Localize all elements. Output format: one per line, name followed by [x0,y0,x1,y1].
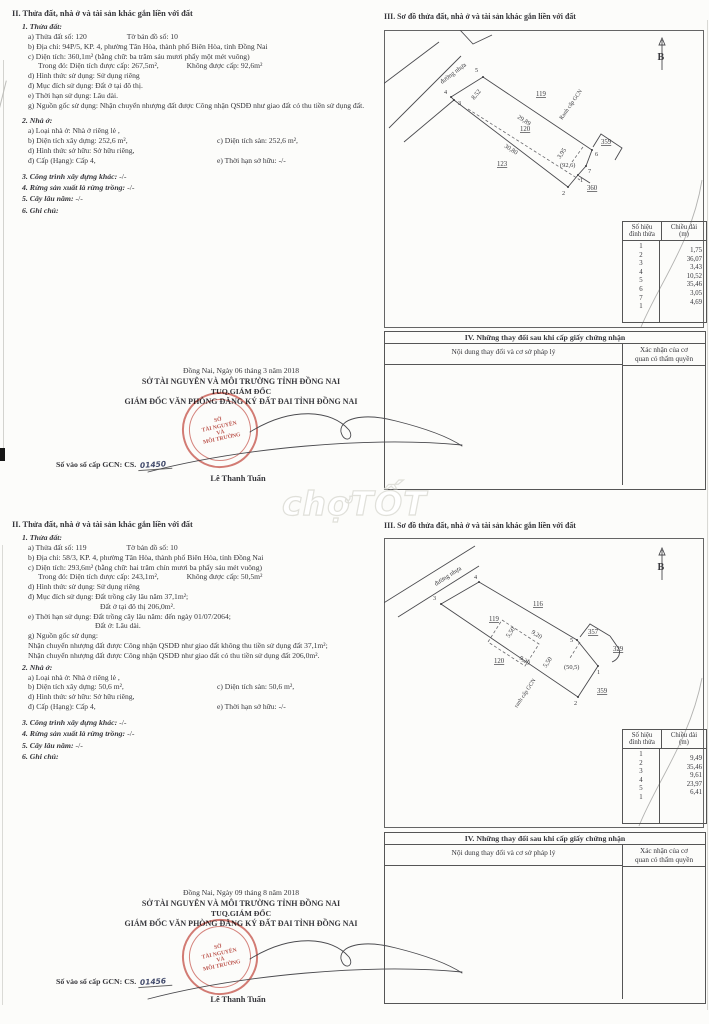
book-entry-number-handwritten: 01456 [138,976,173,988]
use-form-line: d) Hình thức sử dụng: Sử dụng riêng [12,71,378,81]
table-cell: 1 [623,243,659,252]
use-purpose-line: đ) Mục đích sử dụng: Đất ở tại đô thị. [12,81,378,91]
parcel-label-329: 329 [613,646,624,653]
use-term-line-2: Đất ở: Lâu dài. [12,621,378,631]
change-content-header: Nội dung thay đổi và cơ sở pháp lý [385,845,622,866]
parcel-section-title: 1. Thửa đất: [12,533,378,543]
header-line: Xác nhận của cơ [625,847,703,856]
table-cell: 3 [623,768,659,777]
change-content-column: Nội dung thay đổi và cơ sở pháp lý [385,344,623,485]
other-construction-label: 3. Công trình xây dựng khác: [22,718,117,727]
empty-cell [623,366,705,485]
map-sheet-number: Tờ bản đồ số: 10 [126,543,177,553]
granted-boundary-label: Ranh cấp GCN [558,87,585,121]
vertex-label-2: 2 [574,700,577,707]
parcel-label-359: 359 [597,688,608,695]
vertex-numbers: 1 2 3 4 5 1 [623,749,660,823]
red-seal-inner: SỞ TÀI NGUYÊN VÀ MÔI TRƯỜNG [183,920,257,994]
other-construction-line: 3. Công trình xây dựng khác: -/- [12,717,378,728]
table-cell: 5 [623,277,659,286]
header-line: Số hiệu [624,732,660,739]
vertex-label-5: 5 [475,67,478,74]
origin-line-1: Nhận chuyển nhượng đất được Công nhận QS… [12,641,378,651]
parcel-section-title: 1. Thửa đất: [12,22,378,32]
vertex-label-6: 6 [595,151,598,158]
road-edge [389,56,461,128]
house-grade: đ) Cấp (Hạng): Cấp 4, [28,156,217,166]
house-type-line: a) Loại nhà ở: Nhà ở riêng lẻ , [12,673,378,683]
section2-heading: II. Thửa đất, nhà ở và tài sản khác gắn … [12,519,378,530]
chotot-watermark: chợTỐT [282,484,427,523]
book-entry-number-handwritten: 01450 [138,459,173,471]
scan-black-mark [0,448,5,461]
section4-columns: Nội dung thay đổi và cơ sở pháp lý Xác n… [385,845,705,999]
section4-box-2: IV. Những thay đổi sau khi cấp giấy chứn… [384,832,706,1004]
perennial-label: 5. Cây lâu năm: [22,194,74,203]
edge-length-label: 9,20 [518,655,531,667]
granted-area: Trong đó: Diện tích được cấp: 243,1m², [38,572,159,581]
org-name: SỞ TÀI NGUYÊN VÀ MÔI TRƯỜNG TỈNH ĐỒNG NA… [60,899,422,908]
house-section-title: 2. Nhà ở: [12,116,378,126]
book-entry-line: Số vào sổ cấp GCN: CS. 01456 [56,977,172,987]
vertex-label-3: 3 [458,100,461,107]
road-edge [384,546,475,604]
parcel-number: a) Thửa đất số: 119 [28,543,87,552]
vertex-numbers: 1 2 3 4 5 6 7 1 [623,241,660,322]
parcel-label-123: 123 [497,161,508,168]
parcel-label-119: 119 [489,616,500,623]
edge-length-label: 30,80 [503,143,519,157]
perennial-value: -/- [76,741,83,750]
tuq-title: TUQ.GIÁM ĐỐC [60,909,422,918]
perennial-value: -/- [76,194,83,203]
section4-heading: IV. Những thay đổi sau khi cấp giấy chứn… [385,833,705,845]
vertex-table-body: 1 2 3 4 5 6 7 1 1,75 36,07 3,43 10,52 35… [623,241,706,322]
forest-value: -/- [127,729,134,738]
other-construction-value: -/- [119,718,126,727]
forest-value: -/- [127,183,134,192]
table-cell: 6 [623,286,659,295]
page-edge-line-right [707,20,708,1010]
floor-area: c) Diện tích sàn: 252,6 m², [217,136,298,146]
header-line: đỉnh thửa [624,231,660,238]
table-cell: 4 [623,777,659,786]
book-entry-line: Số vào sổ cấp GCN: CS. 01450 [56,460,172,470]
parcel-label-359: 359 [601,139,612,146]
empty-cell [385,365,622,485]
house-area-line: b) Diện tích xây dựng: 50,6 m², c) Diện … [12,682,378,692]
vertex-label-2: 2 [562,190,565,197]
edge-length-label: 5,50 [505,626,517,639]
parcel-number-line: a) Thửa đất số: 120 Tờ bản đồ số: 10 [12,32,378,42]
length-col-header: Chiều dài (m) [662,730,706,748]
page2-signature-block: Đồng Nai, Ngày 09 tháng 8 năm 2018 SỞ TÀ… [60,888,422,928]
map-sheet-number: Tờ bản đồ số: 10 [127,32,178,42]
dashed-segment [570,642,580,658]
table-cell: 4,69 [660,299,702,308]
house-type-line: a) Loại nhà ở: Nhà ở riêng lẻ , [12,126,378,136]
table-cell: 3,43 [660,264,702,273]
origin-line: g) Nguồn gốc sử dụng: Nhận chuyển nhượng… [12,101,373,111]
confirmation-column: Xác nhận của cơ quan có thẩm quyền [623,845,705,999]
org-name: SỞ TÀI NGUYÊN VÀ MÔI TRƯỜNG TỈNH ĐỒNG NA… [60,377,422,386]
empty-cell [623,867,705,999]
table-cell: 23,97 [660,781,702,790]
table-cell: 10,52 [660,273,702,282]
granted-boundary-label: ranh cấp GCN [513,677,538,709]
other-construction-label: 3. Công trình xây dựng khác: [22,172,117,181]
table-cell: 1 [623,794,659,803]
vertex-label-1: 1 [597,669,600,676]
page-edge-line-top [3,60,4,460]
table-cell: 1 [623,303,659,312]
parcel-label-116: 116 [533,601,544,608]
edge-length-label: 9,20 [530,629,543,641]
parcel-number: a) Thửa đất số: 120 [28,32,87,41]
parcel-label-360: 360 [587,185,598,192]
table-cell: 1 [623,751,659,760]
forest-line: 4. Rừng sản xuất là rừng trồng: -/- [12,728,378,739]
floor-area: c) Diện tích sàn: 50,6 m², [217,682,294,692]
vertex-label-4: 4 [474,574,477,581]
header-line: (m) [663,231,705,238]
not-granted-area-label: (92,6) [560,162,575,169]
ownership-term: e) Thời hạn sở hữu: -/- [217,702,286,712]
forest-label: 4. Rừng sản xuất là rừng trồng: [22,183,125,192]
edge-length-label: 5,50 [542,656,554,669]
vertex-label-7: 7 [588,168,591,175]
table-cell: 5 [623,785,659,794]
signer-name: Lê Thanh Tuấn [178,474,298,483]
section2-heading: II. Thửa đất, nhà ở và tài sản khác gắn … [12,8,378,19]
table-cell: 36,07 [660,256,702,265]
road-label: đường nhựa [433,565,463,588]
house-grade: đ) Cấp (Hạng): Cấp 4, [28,702,217,712]
section3-heading: III. Sơ đồ thửa đất, nhà ở và tài sản kh… [384,521,706,530]
scanned-land-certificate: { "watermark": { "text": "chợTỐT" }, "pa… [0,0,709,1024]
page2-section2: II. Thửa đất, nhà ở và tài sản khác gắn … [12,519,378,762]
header-line: Chiều dài [663,732,705,739]
section4-heading: IV. Những thay đổi sau khi cấp giấy chứn… [385,332,705,344]
empty-cell [385,866,622,999]
other-construction-line: 3. Công trình xây dựng khác: -/- [12,171,378,182]
header-line: quan có thẩm quyền [625,355,703,364]
section3-heading: III. Sơ đồ thửa đất, nhà ở và tài sản kh… [384,12,706,21]
change-content-column: Nội dung thay đổi và cơ sở pháp lý [385,845,623,999]
area-detail-line: Trong đó: Diện tích được cấp: 267,5m², K… [12,61,378,71]
confirmation-header: Xác nhận của cơ quan có thẩm quyền [623,344,705,366]
origin-line-2: Nhận chuyển nhượng đất được Công nhận QS… [12,651,378,661]
ownership-term: e) Thời hạn sở hữu: -/- [217,156,286,166]
parcel-label-357: 357 [588,629,599,636]
other-construction-value: -/- [119,172,126,181]
edge-lengths: 1,75 36,07 3,43 10,52 35,46 3,05 4,69 [660,241,706,322]
road-fork [460,30,492,44]
not-granted-area-label: (50,5) [564,664,579,671]
use-purpose-line-2: Đất ở tại đô thị 206,0m². [12,602,378,612]
vertex-table-2: Số hiệu đỉnh thửa Chiều dài (m) 1 2 3 4 … [622,729,707,824]
vertex-label-5: 5 [570,637,573,644]
not-granted-area: Không được cấp: 50,5m² [187,572,263,582]
parcel-119-boundary [441,582,598,697]
header-line: Số hiệu [624,224,660,231]
address-line: b) Địa chỉ: 58/3, KP. 4, phường Tân Hòa,… [12,553,378,563]
table-cell: 7 [623,295,659,304]
parcel-label-120: 120 [520,126,531,133]
table-cell: 2 [623,252,659,261]
table-cell: 3 [623,260,659,269]
header-line: Chiều dài [663,224,705,231]
page-edge-line-bottom [2,545,3,1005]
table-cell: 6,41 [660,789,702,798]
use-form-line: d) Hình thức sử dụng: Sử dụng riêng [12,582,378,592]
length-col-header: Chiều dài (m) [662,222,706,240]
house-section-title: 2. Nhà ở: [12,663,378,673]
page1-section2: II. Thửa đất, nhà ở và tài sản khác gắn … [12,8,378,216]
not-granted-area: Không được cấp: 92,6m² [187,61,263,71]
section4-box-1: IV. Những thay đổi sau khi cấp giấy chứn… [384,331,706,490]
section4-columns: Nội dung thay đổi và cơ sở pháp lý Xác n… [385,344,705,485]
dashed-segment [572,147,583,162]
date-line: Đồng Nai, Ngày 06 tháng 3 năm 2018 [60,366,422,375]
red-seal-inner: SỞ TÀI NGUYÊN VÀ MÔI TRƯỜNG [183,393,257,467]
change-content-header: Nội dung thay đổi và cơ sở pháp lý [385,344,622,365]
build-area: b) Diện tích xây dựng: 252,6 m², [28,136,217,146]
house-area-line: b) Diện tích xây dựng: 252,6 m², c) Diện… [12,136,378,146]
road-edge [384,42,439,85]
house-grade-line: đ) Cấp (Hạng): Cấp 4, e) Thời hạn sở hữu… [12,156,378,166]
use-term-line: e) Thời hạn sử dụng: Lâu dài. [12,91,378,101]
header-line: (m) [663,739,705,746]
book-entry-label: Số vào sổ cấp GCN: CS. [56,977,136,986]
vertex-table-1: Số hiệu đỉnh thửa Chiều dài (m) 1 2 3 4 … [622,221,707,323]
vertex-table-body: 1 2 3 4 5 1 9,49 35,46 9,61 23,97 6,41 [623,749,706,823]
confirmation-column: Xác nhận của cơ quan có thẩm quyền [623,344,705,485]
granted-area: Trong đó: Diện tích được cấp: 267,5m², [38,61,159,70]
table-cell: 1,75 [660,247,702,256]
notes-line: 6. Ghi chú: [12,751,378,762]
tuq-title: TUQ.GIÁM ĐỐC [60,387,422,396]
book-entry-label: Số vào sổ cấp GCN: CS. [56,460,136,469]
table-cell: 9,61 [660,772,702,781]
road-edge [398,566,479,617]
parcel-label-119: 119 [536,91,547,98]
table-cell: 35,46 [660,281,702,290]
confirmation-header: Xác nhận của cơ quan có thẩm quyền [623,845,705,867]
ownership-form-line: d) Hình thức sở hữu: Sở hữu riêng, [12,146,378,156]
table-cell: 2 [623,760,659,769]
build-area: b) Diện tích xây dựng: 50,6 m², [28,682,217,692]
header-line: đỉnh thửa [624,739,660,746]
edge-length-label: 3,95 [556,147,568,160]
vertex-label-3: 3 [433,595,436,602]
area-line: c) Diện tích: 293,6m² (bằng chữ: hai tră… [12,563,378,573]
parcel-123-edge [404,100,454,142]
vertex-label-1: 1 [580,177,583,184]
address-line: b) Địa chỉ: 94P/5, KP. 4, phường Tân Hòa… [12,42,378,52]
header-line: Xác nhận của cơ [625,346,703,355]
date-line: Đồng Nai, Ngày 09 tháng 8 năm 2018 [60,888,422,897]
parcel-number-line: a) Thửa đất số: 119 Tờ bản đồ số: 10 [12,543,378,553]
area-line: c) Diện tích: 360,1m² (bằng chữ: ba trăm… [12,52,378,62]
origin-label-line: g) Nguồn gốc sử dụng: [12,631,378,641]
perennial-line: 5. Cây lâu năm: -/- [12,740,378,751]
table-cell: 9,49 [660,755,702,764]
north-symbol: B [658,52,665,63]
ownership-form-line: d) Hình thức sở hữu: Sở hữu riêng, [12,692,378,702]
use-purpose-line: đ) Mục đích sử dụng: Đất trồng cây lâu n… [12,592,378,602]
edge-length-label: 8,52 [470,88,483,101]
table-cell: 35,46 [660,764,702,773]
table-cell: 3,05 [660,290,702,299]
house-grade-line: đ) Cấp (Hạng): Cấp 4, e) Thời hạn sở hữu… [12,702,378,712]
vertex-table-header: Số hiệu đỉnh thửa Chiều dài (m) [623,730,706,749]
north-symbol: B [658,562,665,573]
perennial-line: 5. Cây lâu năm: -/- [12,193,378,204]
table-cell: 4 [623,269,659,278]
forest-line: 4. Rừng sản xuất là rừng trồng: -/- [12,182,378,193]
vertex-col-header: Số hiệu đỉnh thửa [623,730,662,748]
parcel-label-120: 120 [494,658,505,665]
header-line: quan có thẩm quyền [625,856,703,865]
vertex-table-header: Số hiệu đỉnh thửa Chiều dài (m) [623,222,706,241]
use-term-line: e) Thời hạn sử dụng: Đất trồng cây lâu n… [12,612,378,622]
notes-line: 6. Ghi chú: [12,205,378,216]
signer-name: Lê Thanh Tuấn [178,995,298,1004]
area-detail-line: Trong đó: Diện tích được cấp: 243,1m², K… [12,572,378,582]
vertex-col-header: Số hiệu đỉnh thửa [623,222,662,240]
vertex-label-4: 4 [444,89,447,96]
perennial-label: 5. Cây lâu năm: [22,741,74,750]
forest-label: 4. Rừng sản xuất là rừng trồng: [22,729,125,738]
edge-lengths: 9,49 35,46 9,61 23,97 6,41 [660,749,706,823]
